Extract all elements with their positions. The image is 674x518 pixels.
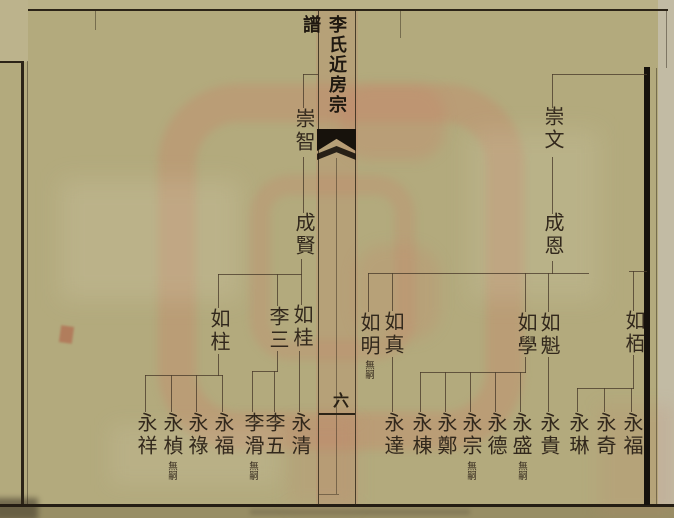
connector — [299, 351, 300, 412]
person-lihua: 李滑 — [239, 412, 265, 462]
paper-bottom-edge — [0, 507, 674, 518]
person-ruzhu: 如柱 — [205, 308, 231, 358]
left-border-inner — [27, 61, 28, 507]
person-ruming: 如明 — [355, 312, 381, 362]
connector — [303, 74, 304, 108]
connector — [145, 375, 146, 412]
person-yonglu: 永祿 — [183, 412, 209, 462]
connector — [392, 273, 393, 311]
person-yongda: 永達 — [379, 412, 405, 462]
connector — [633, 271, 634, 311]
right-corner-line — [666, 10, 667, 68]
connector — [495, 372, 496, 412]
fold-column-right-rule — [355, 10, 356, 505]
person-chengxian: 成賢 — [290, 212, 316, 262]
connector — [252, 371, 253, 412]
connector — [445, 372, 446, 412]
person-rubai: 如栢 — [620, 310, 646, 360]
connector — [218, 274, 219, 308]
top-column-stub-mid — [400, 10, 401, 38]
person-yongsheng: 永盛 — [507, 412, 533, 462]
connector — [368, 273, 369, 312]
bottom-border — [0, 504, 674, 507]
no-heir-note-yongsheng: 無嗣 — [515, 461, 527, 485]
connector — [303, 74, 319, 75]
connector — [604, 388, 605, 412]
person-yongzong: 永宗 — [457, 412, 483, 462]
paper-right-edge — [658, 0, 674, 518]
no-heir-note-ruming: 無嗣 — [362, 360, 374, 384]
person-yongdong: 永棟 — [407, 412, 433, 462]
top-border — [28, 9, 668, 11]
connector — [470, 372, 471, 412]
person-chongwen: 崇文 — [539, 106, 565, 156]
connector — [420, 372, 421, 412]
page-number: 六 — [325, 392, 351, 414]
connector — [552, 74, 553, 108]
left-border-outer — [21, 61, 24, 507]
connector — [171, 375, 172, 412]
connector — [631, 388, 632, 412]
person-yongzhen: 永楨 — [158, 412, 184, 462]
paper-stain-red-mark — [59, 325, 74, 344]
person-yonggui: 永貴 — [535, 412, 561, 462]
connector — [222, 375, 223, 412]
connector — [548, 273, 549, 312]
connector — [552, 74, 647, 75]
connector — [277, 274, 278, 306]
paper-mottle-2 — [470, 130, 600, 300]
connector — [196, 375, 197, 412]
connector — [629, 271, 647, 272]
connector — [552, 157, 553, 214]
right-black-bar — [644, 67, 650, 505]
top-column-stub-left — [95, 10, 96, 30]
connector — [633, 355, 634, 389]
person-ruxue: 如學 — [512, 312, 538, 362]
person-ruzhen: 如真 — [379, 311, 405, 361]
person-yongzheng: 永鄭 — [432, 412, 458, 462]
paper-bottom-smudge — [0, 498, 38, 518]
connector — [274, 371, 275, 412]
fold-crease-line — [336, 158, 337, 494]
connector — [145, 375, 223, 376]
paper-left-corner — [0, 0, 28, 62]
person-rukui: 如魁 — [535, 312, 561, 362]
connector — [392, 357, 393, 412]
left-border-tick — [0, 61, 22, 63]
fold-column-left-rule — [318, 10, 319, 505]
person-lisan: 李三 — [264, 306, 290, 356]
connector — [520, 372, 521, 412]
paper-bottom-streak — [250, 509, 470, 515]
person-yongfu-right: 永福 — [618, 412, 644, 462]
book-title: 李氏近房宗譜 — [326, 15, 350, 133]
person-yongde: 永德 — [482, 412, 508, 462]
genealogy-scan-page: 李氏近房宗譜 六 崇文 成恩 如栢 如魁 如學 如真 如明 無嗣 — [0, 0, 674, 518]
person-chongzhi: 崇智 — [290, 108, 316, 158]
connector — [218, 274, 302, 275]
right-edge-line — [656, 68, 657, 504]
person-yongfu-left: 永福 — [209, 412, 235, 462]
no-heir-note-lihua: 無嗣 — [246, 461, 258, 485]
connector — [301, 259, 302, 305]
connector — [420, 372, 526, 373]
person-yongxiang: 永祥 — [132, 412, 158, 462]
connector — [525, 273, 526, 312]
person-yongqing: 永清 — [286, 412, 312, 462]
paper-top-edge — [0, 0, 674, 9]
person-yongqi: 永奇 — [591, 412, 617, 462]
connector — [577, 388, 578, 412]
person-chengen: 成恩 — [539, 212, 565, 262]
paper-mottle-1 — [60, 180, 240, 300]
fold-bottom-tick — [319, 494, 339, 495]
connector — [577, 388, 634, 389]
connector — [368, 273, 589, 274]
connector — [548, 357, 549, 412]
no-heir-note-yongzong: 無嗣 — [464, 461, 476, 485]
person-yonglin: 永琳 — [564, 412, 590, 462]
no-heir-note-yongzhen: 無嗣 — [165, 461, 177, 485]
person-rugui: 如桂 — [288, 304, 314, 354]
connector — [303, 157, 304, 213]
